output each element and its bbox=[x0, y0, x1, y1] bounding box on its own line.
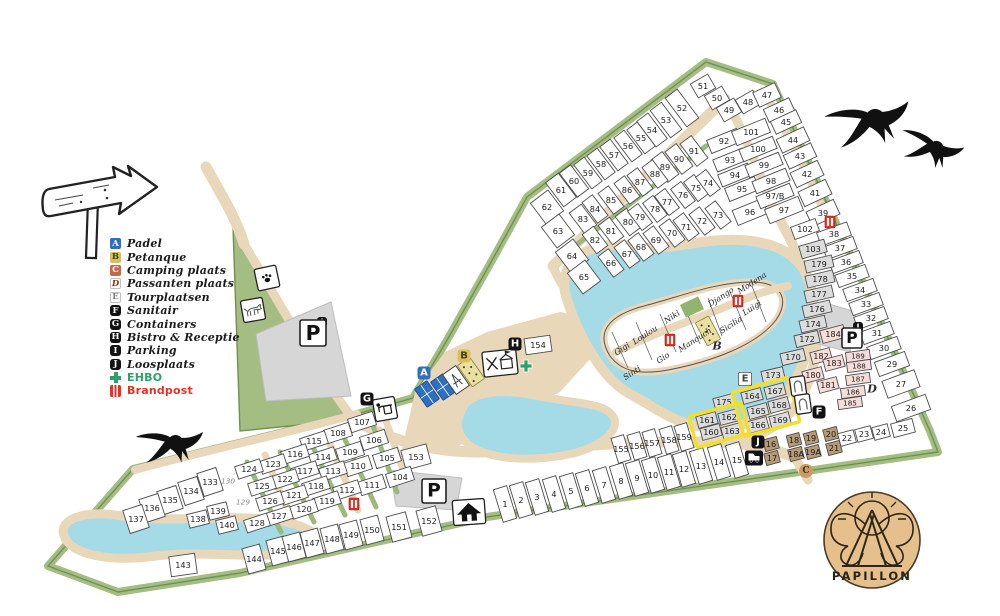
legend-item-padel: APadel bbox=[110, 237, 240, 250]
plot-number: 84 bbox=[590, 204, 600, 214]
plot-number: 41 bbox=[810, 188, 820, 198]
legend-label: Containers bbox=[127, 318, 196, 331]
plot-number: 53 bbox=[661, 115, 671, 125]
plot-number: 8 bbox=[618, 476, 623, 486]
plot-number: 109 bbox=[342, 447, 358, 457]
plot-number: 108 bbox=[330, 428, 346, 438]
plot-number: 38 bbox=[829, 229, 839, 239]
plot-number: 9 bbox=[634, 473, 639, 483]
plot-number: 52 bbox=[677, 103, 687, 113]
plot-number: 97 bbox=[779, 205, 789, 215]
plot-number: 105 bbox=[379, 453, 395, 463]
svg-text:A: A bbox=[420, 368, 428, 379]
badge-g-icon: G bbox=[361, 393, 374, 406]
plot-number: 85 bbox=[606, 195, 616, 205]
plot-number: 69 bbox=[651, 235, 661, 245]
plot-number: 81 bbox=[606, 226, 616, 236]
plot-number: 22 bbox=[842, 433, 852, 443]
plot-number: 140 bbox=[219, 520, 235, 530]
svg-text:J: J bbox=[755, 437, 760, 448]
svg-text:G: G bbox=[363, 394, 371, 405]
plot-number: 146 bbox=[286, 542, 302, 552]
legend-item-parking: IParking bbox=[110, 344, 240, 357]
plot-number: 116 bbox=[287, 449, 303, 459]
plot-number: 42 bbox=[802, 169, 812, 179]
plot-number: 15 bbox=[732, 455, 742, 465]
plot-number: 76 bbox=[678, 190, 688, 200]
plot-number: 87 bbox=[635, 177, 645, 187]
plot-number: 133 bbox=[202, 477, 218, 487]
plot-number: 94 bbox=[730, 170, 740, 180]
plot-number: 104 bbox=[392, 472, 408, 482]
plot-number: 110 bbox=[350, 461, 366, 471]
parking-sign-icon: P bbox=[300, 320, 326, 346]
plot-number: 174 bbox=[805, 319, 821, 329]
plot-number: 129 bbox=[236, 498, 250, 507]
legend-item-passanten-plaats: DPassanten plaats bbox=[110, 277, 240, 290]
plot-number: 102 bbox=[797, 224, 813, 234]
swim-pond bbox=[458, 392, 615, 459]
plot-number: 164 bbox=[744, 391, 760, 401]
legend-badge-e-icon: E bbox=[110, 292, 121, 303]
bistro-sign-icon bbox=[482, 349, 518, 377]
legend-badge-g-icon: G bbox=[110, 319, 121, 330]
plot-number: 75 bbox=[691, 183, 701, 193]
plot-number: 47 bbox=[762, 90, 772, 100]
plot-number: 150 bbox=[364, 525, 380, 535]
legend-item-ehbo: EHBO bbox=[110, 371, 240, 384]
legend-badge-a-icon: A bbox=[110, 238, 121, 249]
legend-item-loosplaats: JLoosplaats bbox=[110, 358, 240, 371]
plot-number: 65 bbox=[579, 272, 589, 282]
plot-number: 176 bbox=[809, 304, 825, 314]
brandpost-icon bbox=[733, 295, 743, 307]
legend-badge-i-icon: I bbox=[110, 345, 121, 356]
legend-item-bistro-receptie: HBistro & Receptie bbox=[110, 331, 240, 344]
badge-b-icon: B bbox=[458, 350, 471, 363]
plot-number: 147 bbox=[304, 538, 320, 548]
plot-number: 32 bbox=[866, 313, 876, 323]
legend-item-sanitair: FSanitair bbox=[110, 304, 240, 317]
plot-number: 169 bbox=[772, 415, 788, 425]
plot-number: 27 bbox=[896, 379, 906, 389]
plot-number: 187 bbox=[851, 375, 865, 384]
plot-number: 18A bbox=[788, 449, 804, 459]
plot-number: 185 bbox=[843, 399, 857, 408]
legend-label: Parking bbox=[127, 344, 177, 357]
plot-number: 115 bbox=[306, 436, 322, 446]
svg-text:P: P bbox=[306, 321, 321, 345]
plot-number: 137 bbox=[128, 514, 144, 524]
swallow-icon bbox=[896, 128, 965, 173]
plot-number: 64 bbox=[567, 251, 577, 261]
legend-label: Bistro & Receptie bbox=[127, 331, 240, 344]
plot-number: 99 bbox=[759, 160, 769, 170]
plot-number: 19 bbox=[806, 433, 816, 443]
legend-label: Petanque bbox=[127, 251, 186, 264]
plot-number: 70 bbox=[667, 228, 677, 238]
plot-number: 160 bbox=[703, 427, 719, 437]
plot-number: 101 bbox=[743, 127, 759, 137]
plot-143: 143 bbox=[169, 553, 198, 576]
plot-number: 170 bbox=[785, 352, 801, 362]
legend-badge-j-icon: J bbox=[110, 359, 121, 370]
plot-number: 134 bbox=[183, 486, 199, 496]
badge-e-icon: E bbox=[739, 373, 752, 386]
plot-number: 139 bbox=[210, 506, 226, 516]
plot-number: 11 bbox=[664, 467, 674, 477]
legend-item-brandpost: Brandpost bbox=[110, 384, 240, 397]
plot-number: 180 bbox=[805, 370, 821, 380]
plot-number: 16 bbox=[766, 439, 776, 449]
plot-number: 14 bbox=[714, 457, 724, 467]
parking-sign-icon: P bbox=[842, 328, 862, 348]
plot-number: 82 bbox=[590, 235, 600, 245]
plot-number: 29 bbox=[887, 359, 897, 369]
plot-number: 189 bbox=[851, 352, 865, 361]
plot-number: 90 bbox=[674, 154, 684, 164]
legend-badge-h-icon: H bbox=[110, 332, 121, 343]
plot-number: 152 bbox=[421, 516, 437, 526]
map-legend: APadelBPetanqueCCamping plaatsDPassanten… bbox=[110, 237, 240, 398]
svg-text:B: B bbox=[711, 340, 721, 353]
plot-number: 24 bbox=[876, 427, 886, 437]
plot-number: 79 bbox=[635, 212, 645, 222]
plot-number: 128 bbox=[249, 518, 265, 528]
svg-text:P: P bbox=[427, 481, 441, 502]
plot-number: 72 bbox=[697, 216, 707, 226]
plot-number: 168 bbox=[771, 400, 787, 410]
badge-d-icon: D bbox=[866, 383, 877, 396]
camper-sign-icon bbox=[745, 451, 763, 466]
plot-number: 184 bbox=[825, 329, 841, 339]
plot-number: 138 bbox=[190, 514, 206, 524]
plot-154: 154 bbox=[524, 335, 552, 354]
trash-sign-icon bbox=[372, 396, 397, 421]
plot-number: 13 bbox=[696, 461, 706, 471]
svg-text:F: F bbox=[816, 407, 823, 418]
legend-label: Passanten plaats bbox=[127, 277, 234, 290]
plot-number: 157 bbox=[644, 438, 660, 448]
plot-number: 158 bbox=[661, 435, 677, 445]
plot-number: 3 bbox=[534, 492, 539, 502]
plot-number: 91 bbox=[689, 146, 699, 156]
plot-number: 124 bbox=[241, 464, 257, 474]
legend-badge-d-icon: D bbox=[110, 278, 121, 289]
plot-number: 125 bbox=[254, 481, 270, 491]
plot-number: 23 bbox=[859, 429, 869, 439]
plot-number: 4 bbox=[551, 489, 556, 499]
plot-number: 112 bbox=[339, 485, 355, 495]
brandpost-icon bbox=[349, 498, 359, 510]
plot-number: 166 bbox=[750, 420, 766, 430]
plot-number: 92 bbox=[719, 136, 729, 146]
plot-number: 55 bbox=[636, 133, 646, 143]
plot-number: 151 bbox=[391, 522, 407, 532]
plot-number: 51 bbox=[698, 81, 708, 91]
plot-number: 36 bbox=[841, 257, 851, 267]
plot-number: 68 bbox=[636, 242, 646, 252]
plot-number: 103 bbox=[805, 244, 821, 254]
plot-number: 117 bbox=[297, 466, 313, 476]
plot-number: 80 bbox=[623, 217, 633, 227]
papillon-logo: PAPILLON bbox=[824, 492, 920, 588]
legend-ehbo-icon bbox=[110, 372, 121, 383]
plot-number: 154 bbox=[530, 340, 546, 350]
plot-number: 186 bbox=[846, 388, 860, 397]
house-sign-icon bbox=[452, 498, 486, 525]
plot-number: 26 bbox=[906, 403, 916, 413]
svg-text:B: B bbox=[460, 351, 468, 362]
legend-label: Padel bbox=[127, 237, 162, 250]
plot-number: 118 bbox=[308, 481, 324, 491]
badge-j-icon: J bbox=[752, 436, 765, 449]
plot-number: 95 bbox=[737, 184, 747, 194]
entrance-road bbox=[206, 167, 244, 244]
plot-number: 161 bbox=[699, 415, 715, 425]
svg-text:E: E bbox=[742, 374, 749, 385]
parking-sign-icon: P bbox=[422, 479, 446, 503]
plot-number: 54 bbox=[647, 125, 657, 135]
plot-number: 177 bbox=[811, 289, 827, 299]
signpost-arrow bbox=[42, 166, 157, 216]
plot-number: 145 bbox=[270, 546, 286, 556]
plot-number: 181 bbox=[820, 380, 836, 390]
plot-number: 97/B bbox=[766, 191, 785, 201]
plot-number: 88 bbox=[650, 169, 660, 179]
plot-number: 34 bbox=[855, 285, 865, 295]
campsite-map-page: 5150494847525354555657585960616263646589… bbox=[0, 0, 1000, 616]
plot-number: 156 bbox=[629, 441, 645, 451]
plot-number: 59 bbox=[583, 168, 593, 178]
plot-number: 149 bbox=[343, 530, 359, 540]
legend-badge-f-icon: F bbox=[110, 305, 121, 316]
plot-number: 20 bbox=[826, 429, 836, 439]
plot-number: 167 bbox=[767, 386, 783, 396]
plot-number: 50 bbox=[712, 93, 722, 103]
plot-number: 49 bbox=[724, 105, 734, 115]
plot-number: 44 bbox=[788, 135, 798, 145]
plot-number: 123 bbox=[265, 459, 281, 469]
legend-brandpost-icon bbox=[110, 385, 121, 397]
plot-number: 153 bbox=[408, 452, 424, 462]
plot-number: 162 bbox=[721, 412, 737, 422]
legend-label: Sanitair bbox=[127, 304, 178, 317]
plot-number: 48 bbox=[743, 97, 753, 107]
plot-number: 6 bbox=[584, 483, 589, 493]
plot-number: 33 bbox=[861, 299, 871, 309]
plot-number: 119 bbox=[319, 496, 335, 506]
legend-label: Tourplaatsen bbox=[127, 291, 210, 304]
plot-number: 159 bbox=[676, 432, 692, 442]
plot-number: 10 bbox=[648, 470, 658, 480]
plot-number: 179 bbox=[811, 259, 827, 269]
plot-number: 25 bbox=[898, 423, 908, 433]
plot-number: 178 bbox=[812, 274, 828, 284]
plot-number: 155 bbox=[613, 444, 629, 454]
plot-number: 63 bbox=[553, 226, 563, 236]
plot-number: 18 bbox=[789, 435, 799, 445]
plot-number: 35 bbox=[847, 271, 857, 281]
plot-number: 107 bbox=[354, 417, 370, 427]
plot-number: 83 bbox=[578, 214, 588, 224]
plot-number: 111 bbox=[364, 480, 380, 490]
plot-number: 113 bbox=[325, 466, 341, 476]
legend-label: Loosplaats bbox=[127, 358, 195, 371]
plot-number: 188 bbox=[852, 362, 866, 371]
badge-a-icon: A bbox=[418, 367, 431, 380]
plot-number: 66 bbox=[606, 258, 616, 268]
badge-c-icon: C bbox=[799, 464, 813, 478]
svg-text:D: D bbox=[866, 383, 877, 396]
plot-number: 78 bbox=[650, 204, 660, 214]
plot-number: 37 bbox=[835, 243, 845, 253]
badge-f-icon: F bbox=[813, 406, 826, 419]
plot-number: 120 bbox=[296, 504, 312, 514]
plot-number: 126 bbox=[262, 496, 278, 506]
plot-number: 67 bbox=[622, 249, 632, 259]
plot-number: 43 bbox=[795, 151, 805, 161]
plot-number: 136 bbox=[144, 503, 160, 513]
shower-sign-icon bbox=[789, 376, 806, 397]
plot-number: 106 bbox=[366, 435, 382, 445]
badge-b-icon: B bbox=[711, 340, 721, 353]
brandpost-icon bbox=[825, 216, 835, 228]
plot-number: 71 bbox=[681, 222, 691, 232]
plot-number: 127 bbox=[271, 511, 287, 521]
legend-item-petanque: BPetanque bbox=[110, 250, 240, 263]
legend-label: Brandpost bbox=[127, 384, 193, 397]
plot-number: 163 bbox=[724, 426, 740, 436]
legend-label: EHBO bbox=[127, 371, 162, 384]
legend-badge-b-icon: B bbox=[110, 252, 121, 263]
shower-sign-icon bbox=[794, 394, 811, 415]
plot-number: 165 bbox=[750, 406, 766, 416]
plot-number: 74 bbox=[703, 178, 713, 188]
plot-number: 46 bbox=[774, 105, 784, 115]
paw-sign-icon bbox=[254, 265, 280, 291]
svg-text:C: C bbox=[802, 466, 809, 476]
plot-number: 60 bbox=[569, 176, 579, 186]
plot-number: 77 bbox=[662, 197, 672, 207]
plot-number: 86 bbox=[622, 185, 632, 195]
plot-number: 2 bbox=[518, 495, 523, 505]
plot-number: 57 bbox=[609, 150, 619, 160]
plot-number: 148 bbox=[324, 534, 340, 544]
plot-number: 114 bbox=[315, 452, 331, 462]
svg-text:H: H bbox=[511, 339, 519, 350]
plot-number: 7 bbox=[601, 480, 606, 490]
badge-h-icon: H bbox=[509, 338, 522, 351]
plot-number: 61 bbox=[556, 185, 566, 195]
plot-number: 58 bbox=[596, 159, 606, 169]
swallow-icon bbox=[824, 97, 916, 155]
brandpost-icon bbox=[665, 334, 675, 346]
plot-number: 122 bbox=[277, 474, 293, 484]
plot-number: 21 bbox=[829, 443, 839, 453]
plot-number: 62 bbox=[542, 202, 552, 212]
dog-sign-icon bbox=[240, 297, 265, 322]
plot-number: 121 bbox=[286, 490, 302, 500]
plot-number: 45 bbox=[781, 117, 791, 127]
plot-number: 31 bbox=[872, 328, 882, 338]
plot-number: 93 bbox=[725, 155, 735, 165]
plot-number: 183 bbox=[826, 358, 842, 368]
plot-number: 98 bbox=[766, 176, 776, 186]
plot-number: 135 bbox=[162, 495, 178, 505]
plot-number: 19A bbox=[805, 447, 821, 457]
plot-number: 100 bbox=[750, 144, 766, 154]
legend-item-containers: GContainers bbox=[110, 317, 240, 330]
plot-number: 30 bbox=[879, 343, 889, 353]
plot-number: 89 bbox=[660, 162, 670, 172]
legend-item-tourplaatsen: ETourplaatsen bbox=[110, 291, 240, 304]
plot-number: 130 bbox=[221, 477, 235, 486]
legend-badge-c-icon: C bbox=[110, 265, 121, 276]
legend-item-camping-plaats: CCamping plaats bbox=[110, 264, 240, 277]
plot-number: 12 bbox=[679, 464, 689, 474]
plot-number: 5 bbox=[568, 486, 573, 496]
plot-number: 17 bbox=[767, 453, 777, 463]
logo-text: PAPILLON bbox=[832, 569, 912, 583]
legend-label: Camping plaats bbox=[127, 264, 226, 277]
plot-number: 144 bbox=[246, 554, 262, 564]
plot-number: 172 bbox=[799, 334, 815, 344]
plot-number: 1 bbox=[502, 499, 507, 509]
svg-text:P: P bbox=[846, 329, 857, 347]
plot-number: 96 bbox=[745, 207, 755, 217]
plot-number: 56 bbox=[623, 141, 633, 151]
plot-number: 143 bbox=[175, 560, 191, 570]
plot-number: 73 bbox=[713, 210, 723, 220]
